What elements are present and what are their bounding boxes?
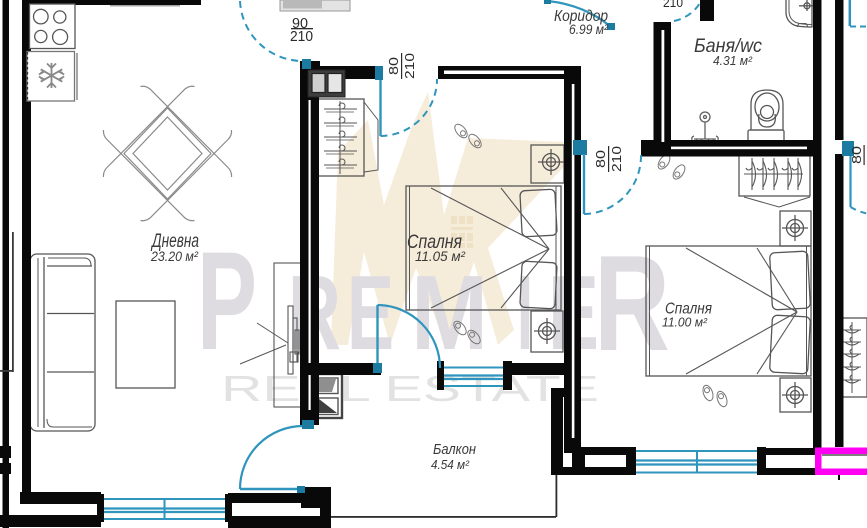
svg-text:80: 80 — [386, 57, 401, 75]
svg-text:Балкон: Балкон — [433, 442, 476, 458]
svg-text:80: 80 — [593, 150, 608, 168]
svg-text:11.00 м²: 11.00 м² — [662, 316, 708, 330]
svg-text:210: 210 — [663, 0, 683, 10]
svg-text:4.54 м²: 4.54 м² — [431, 458, 470, 472]
svg-text:210: 210 — [402, 53, 417, 79]
svg-text:4.31 м²: 4.31 м² — [713, 54, 753, 68]
svg-text:R: R — [594, 227, 670, 379]
svg-text:M: M — [411, 254, 488, 372]
svg-text:210: 210 — [609, 146, 624, 172]
svg-text:P: P — [197, 222, 257, 379]
svg-text:210: 210 — [290, 29, 313, 45]
svg-text:23.20 м²: 23.20 м² — [150, 248, 199, 264]
svg-text:E: E — [347, 254, 394, 372]
svg-text:6.99 м²: 6.99 м² — [569, 22, 608, 37]
svg-text:80: 80 — [849, 146, 864, 164]
svg-text:11.05 м²: 11.05 м² — [415, 248, 466, 264]
